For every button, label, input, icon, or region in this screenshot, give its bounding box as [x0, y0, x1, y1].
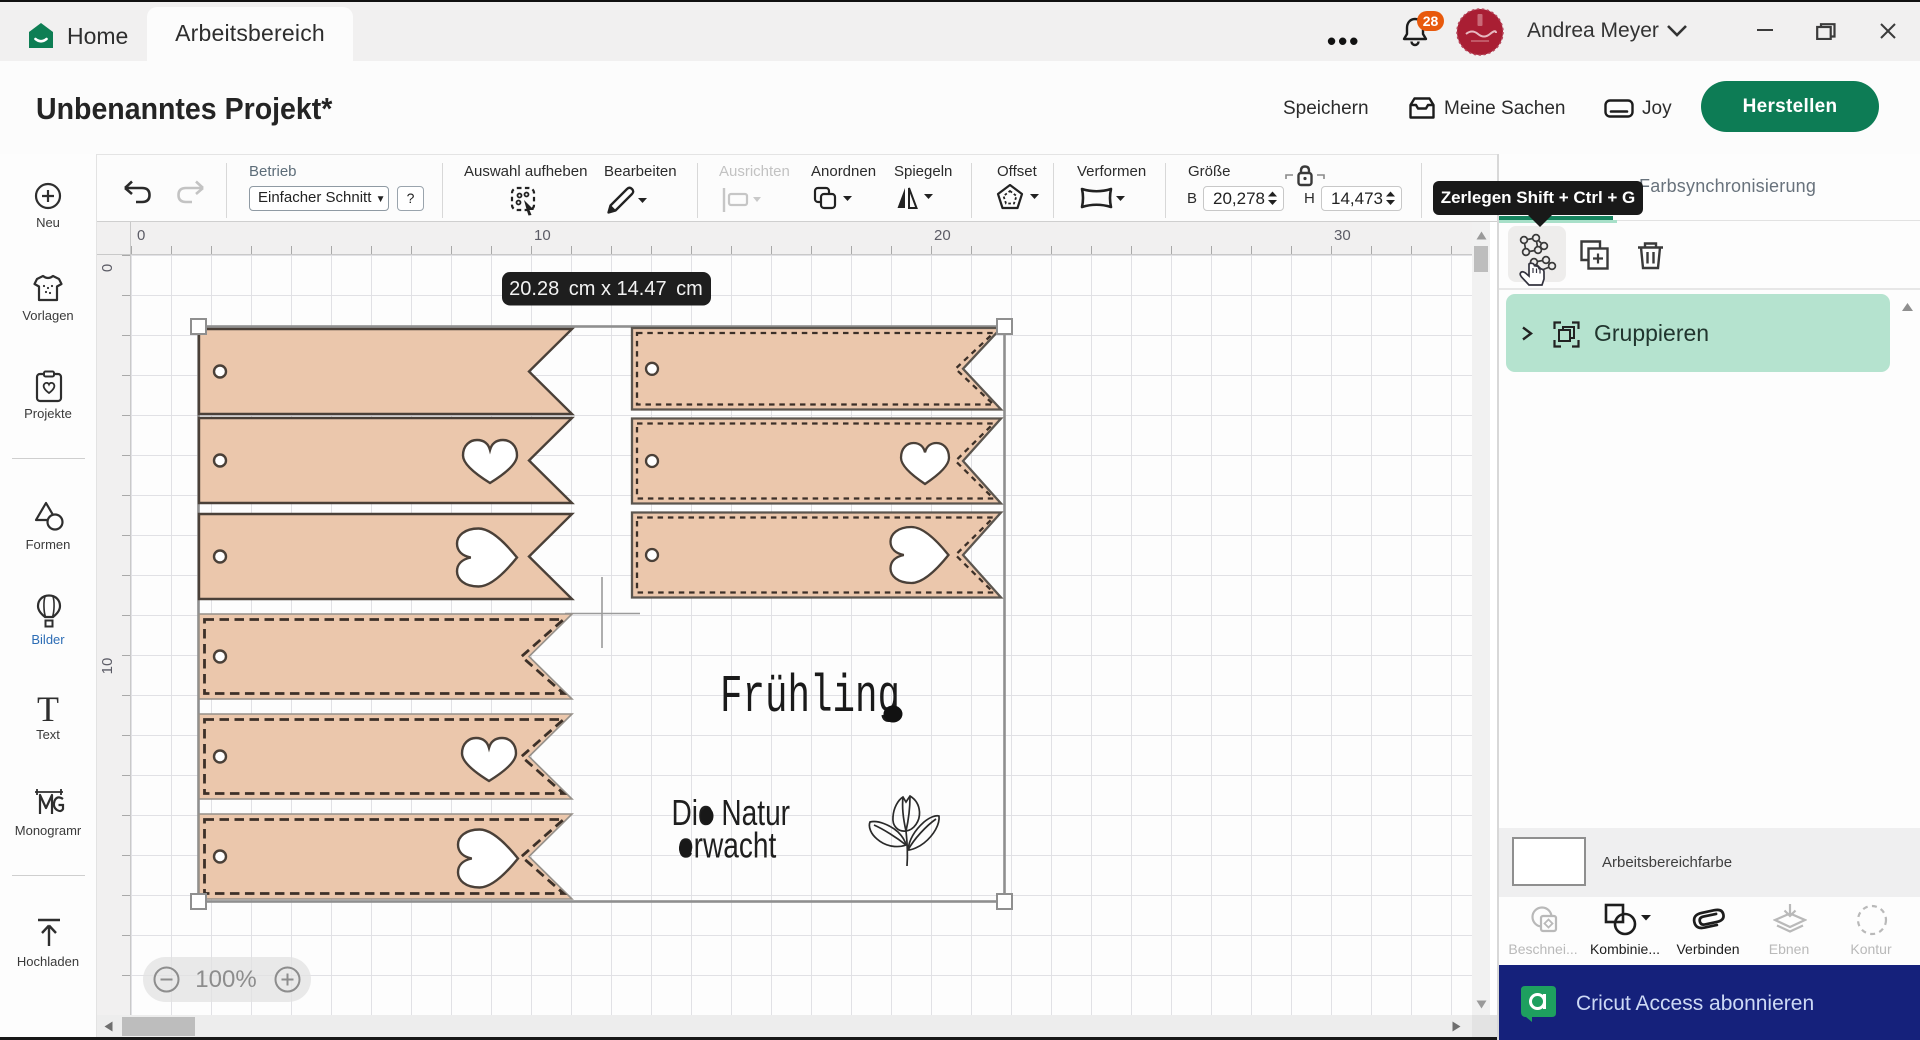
svg-text:erwacht: erwacht [678, 825, 776, 865]
svg-text:Frühling: Frühling [720, 667, 900, 727]
svg-text:20.28 cm x 14.47 cm: 20.28 cm x 14.47 cm [509, 278, 703, 300]
